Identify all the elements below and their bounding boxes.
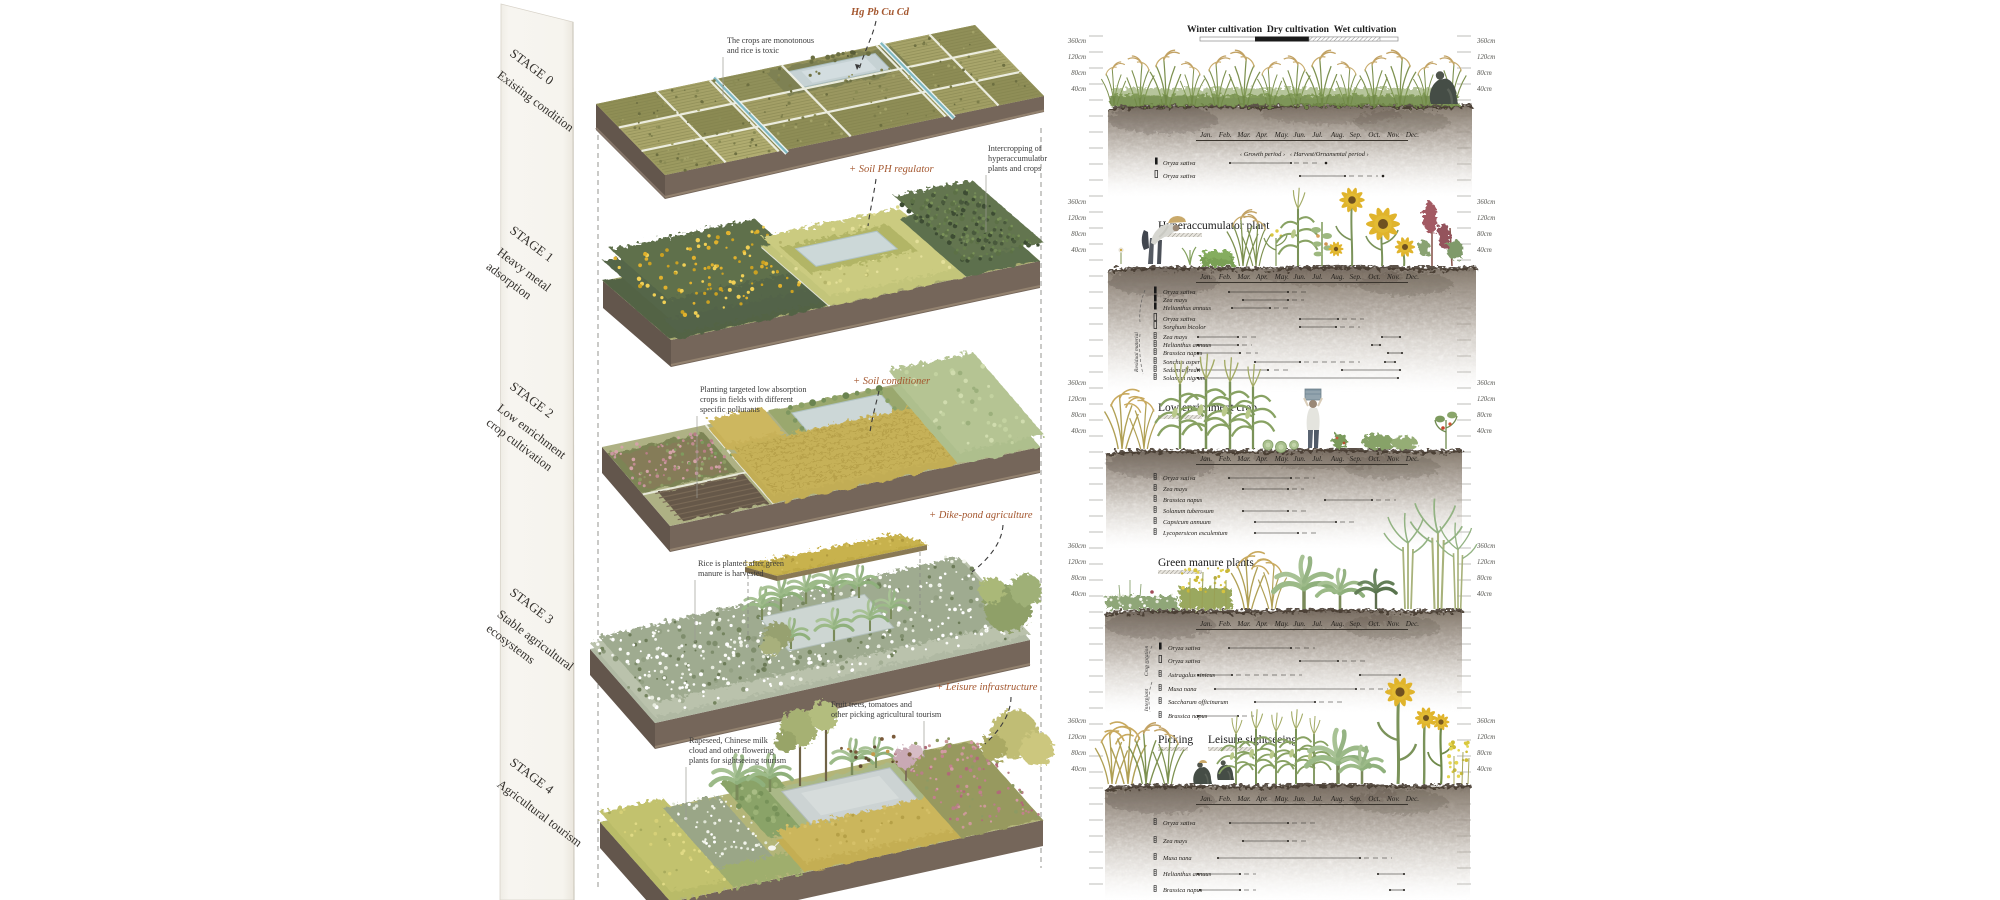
svg-text:Zea mays: Zea mays	[1163, 334, 1188, 341]
svg-text:Jun.: Jun.	[1294, 455, 1306, 463]
svg-text:Helianthus annuus: Helianthus annuus	[1162, 342, 1212, 349]
svg-text:Feb.: Feb.	[1218, 795, 1232, 803]
svg-text:Musa nana: Musa nana	[1167, 686, 1197, 693]
svg-text:120cm: 120cm	[1068, 396, 1086, 403]
svg-text:+ Soil PH regulator: + Soil PH regulator	[849, 164, 934, 175]
svg-text:May.: May.	[1274, 795, 1289, 803]
svg-text:80cm: 80cm	[1071, 412, 1086, 419]
svg-text:Sorghum bicolor: Sorghum bicolor	[1163, 324, 1206, 331]
svg-text:Aug.: Aug.	[1330, 795, 1345, 803]
svg-text:80cm: 80cm	[1477, 412, 1492, 419]
svg-text:80cm: 80cm	[1477, 750, 1492, 757]
svg-text:Zea mays: Zea mays	[1163, 838, 1188, 845]
svg-text:Oryza sativa: Oryza sativa	[1163, 173, 1195, 180]
svg-text:Rapeseed, Chinese milk: Rapeseed, Chinese milk	[689, 736, 769, 745]
svg-text:Apr.: Apr.	[1255, 455, 1268, 463]
svg-text:May.: May.	[1274, 620, 1289, 628]
svg-text:Aug.: Aug.	[1330, 131, 1345, 139]
svg-text:The crops are monotonous: The crops are monotonous	[727, 36, 814, 45]
svg-text:Oryza sativa: Oryza sativa	[1163, 475, 1195, 482]
svg-text:80cm: 80cm	[1477, 231, 1492, 238]
svg-text:Jan.: Jan.	[1200, 795, 1212, 803]
svg-text:Apr.: Apr.	[1255, 273, 1268, 281]
svg-text:Oryza sativa: Oryza sativa	[1163, 289, 1195, 296]
svg-text:360cm: 360cm	[1476, 543, 1495, 550]
svg-text:40cm: 40cm	[1071, 428, 1086, 435]
svg-text:120cm: 120cm	[1068, 734, 1086, 741]
svg-text:Brassica napus: Brassica napus	[1163, 350, 1203, 357]
svg-text:Jan.: Jan.	[1200, 273, 1212, 281]
svg-text:Winter cultivation Dry cultiv: Winter cultivation Dry cultivation Wet c…	[1187, 24, 1397, 35]
svg-text:120cm: 120cm	[1477, 559, 1495, 566]
svg-text:120cm: 120cm	[1068, 54, 1086, 61]
svg-text:80cm: 80cm	[1071, 231, 1086, 238]
svg-text:Oryza sativa: Oryza sativa	[1168, 645, 1200, 652]
svg-text:Oct.: Oct.	[1368, 620, 1380, 628]
svg-text:360cm: 360cm	[1476, 718, 1495, 725]
svg-text:Oryza sativa: Oryza sativa	[1163, 316, 1195, 323]
svg-text:‹ Harvest/Ornamental period ›: ‹ Harvest/Ornamental period ›	[1290, 151, 1369, 158]
svg-text:Crop rotation: Crop rotation	[1144, 646, 1150, 677]
svg-text:Feb.: Feb.	[1218, 455, 1232, 463]
svg-text:40cm: 40cm	[1477, 591, 1492, 598]
svg-text:80cm: 80cm	[1071, 750, 1086, 757]
svg-text:Zea mays: Zea mays	[1163, 486, 1188, 493]
svg-text:360cm: 360cm	[1067, 199, 1086, 206]
svg-text:+ Dike-pond agriculture: + Dike-pond agriculture	[929, 510, 1033, 521]
svg-text:specific pollutants: specific pollutants	[700, 405, 760, 414]
svg-text:Sep.: Sep.	[1350, 131, 1362, 139]
svg-text:120cm: 120cm	[1477, 215, 1495, 222]
svg-text:Dec.: Dec.	[1405, 131, 1420, 139]
svg-text:Nov.: Nov.	[1386, 131, 1400, 139]
svg-text:Jul.: Jul.	[1312, 273, 1323, 281]
svg-text:Oct.: Oct.	[1368, 795, 1380, 803]
svg-text:Oryza sativa: Oryza sativa	[1168, 658, 1200, 665]
svg-text:Oct.: Oct.	[1368, 273, 1380, 281]
svg-text:Interplant: Interplant	[1144, 688, 1150, 712]
svg-text:Sep.: Sep.	[1350, 795, 1362, 803]
svg-text:Nov.: Nov.	[1386, 795, 1400, 803]
svg-text:Feb.: Feb.	[1218, 131, 1232, 139]
svg-text:Jul.: Jul.	[1312, 131, 1323, 139]
svg-text:Helianthus annuus: Helianthus annuus	[1162, 871, 1212, 878]
svg-text:360cm: 360cm	[1067, 543, 1086, 550]
svg-text:Jun.: Jun.	[1294, 795, 1306, 803]
svg-text:Capsicum annuum: Capsicum annuum	[1163, 519, 1211, 526]
svg-text:Jun.: Jun.	[1294, 620, 1306, 628]
svg-text:Oryza sativa: Oryza sativa	[1163, 820, 1195, 827]
svg-text:Musa nana: Musa nana	[1162, 855, 1192, 862]
svg-text:Fruit trees, tomatoes and: Fruit trees, tomatoes and	[831, 700, 912, 709]
svg-text:other picking agricultural tou: other picking agricultural tourism	[831, 710, 942, 719]
svg-text:360cm: 360cm	[1067, 38, 1086, 45]
svg-text:Lycopersicon esculentum: Lycopersicon esculentum	[1162, 530, 1228, 537]
svg-text:Mar.: Mar.	[1236, 455, 1251, 463]
svg-text:May.: May.	[1274, 131, 1289, 139]
svg-text:Mar.: Mar.	[1236, 620, 1251, 628]
svg-text:80cm: 80cm	[1071, 70, 1086, 77]
svg-text:Saccharum officinarum: Saccharum officinarum	[1168, 699, 1229, 706]
svg-text:Residual material: Residual material	[1134, 332, 1140, 373]
svg-text:Planting targeted low absorpti: Planting targeted low absorption	[700, 385, 807, 394]
svg-text:hyperaccumulator: hyperaccumulator	[988, 154, 1047, 163]
svg-text:Mar.: Mar.	[1236, 131, 1251, 139]
svg-text:Feb.: Feb.	[1218, 620, 1232, 628]
svg-text:Jul.: Jul.	[1312, 455, 1323, 463]
svg-text:Nov.: Nov.	[1386, 620, 1400, 628]
svg-text:40cm: 40cm	[1477, 428, 1492, 435]
svg-text:40cm: 40cm	[1071, 86, 1086, 93]
svg-text:Zea mays: Zea mays	[1163, 297, 1188, 304]
svg-text:Solanum tuberosum: Solanum tuberosum	[1163, 508, 1214, 515]
svg-text:Mar.: Mar.	[1236, 273, 1251, 281]
svg-text:Jul.: Jul.	[1312, 620, 1323, 628]
svg-text:Dec.: Dec.	[1405, 455, 1420, 463]
svg-text:+ Leisure infrastructure: + Leisure infrastructure	[936, 682, 1038, 693]
svg-text:Hg Pb Cu Cd: Hg Pb Cu Cd	[850, 7, 910, 18]
svg-text:Helianthus annuus: Helianthus annuus	[1162, 305, 1212, 312]
svg-text:Brassica napus: Brassica napus	[1163, 497, 1203, 504]
svg-text:cloud and other flowering: cloud and other flowering	[689, 746, 774, 755]
svg-text:40cm: 40cm	[1477, 766, 1492, 773]
svg-text:Oryza sativa: Oryza sativa	[1163, 160, 1195, 167]
svg-text:plants and crops: plants and crops	[988, 164, 1041, 173]
svg-text:+ Soil conditioner: + Soil conditioner	[853, 376, 931, 387]
svg-text:Aug.: Aug.	[1330, 273, 1345, 281]
svg-text:Jun.: Jun.	[1294, 131, 1306, 139]
svg-text:Aug.: Aug.	[1330, 620, 1345, 628]
svg-text:Apr.: Apr.	[1255, 620, 1268, 628]
svg-text:120cm: 120cm	[1068, 559, 1086, 566]
svg-text:120cm: 120cm	[1068, 215, 1086, 222]
svg-text:120cm: 120cm	[1477, 396, 1495, 403]
svg-text:Oct.: Oct.	[1368, 455, 1380, 463]
svg-text:80cm: 80cm	[1477, 575, 1492, 582]
svg-text:manure is harvested: manure is harvested	[698, 569, 763, 578]
svg-text:Nov.: Nov.	[1386, 455, 1400, 463]
svg-text:Aug.: Aug.	[1330, 455, 1345, 463]
svg-text:Jan.: Jan.	[1200, 620, 1212, 628]
svg-text:Feb.: Feb.	[1218, 273, 1232, 281]
svg-text:40cm: 40cm	[1477, 247, 1492, 254]
svg-text:40cm: 40cm	[1071, 247, 1086, 254]
svg-text:Nov.: Nov.	[1386, 273, 1400, 281]
svg-text:May.: May.	[1274, 273, 1289, 281]
svg-text:80cm: 80cm	[1477, 70, 1492, 77]
svg-text:40cm: 40cm	[1477, 86, 1492, 93]
svg-text:360cm: 360cm	[1476, 199, 1495, 206]
svg-text:Apr.: Apr.	[1255, 131, 1268, 139]
svg-text:Oct.: Oct.	[1368, 131, 1380, 139]
svg-text:Astragalus sinicus: Astragalus sinicus	[1167, 672, 1216, 679]
svg-text:and rice is toxic: and rice is toxic	[727, 46, 779, 55]
svg-text:Brassica napus: Brassica napus	[1168, 713, 1208, 720]
svg-text:120cm: 120cm	[1477, 734, 1495, 741]
svg-text:Jul.: Jul.	[1312, 795, 1323, 803]
svg-text:Picking: Picking	[1158, 734, 1193, 746]
svg-text:120cm: 120cm	[1477, 54, 1495, 61]
svg-text:360cm: 360cm	[1067, 380, 1086, 387]
svg-text:360cm: 360cm	[1067, 718, 1086, 725]
svg-text:Jun.: Jun.	[1294, 273, 1306, 281]
svg-text:Dec.: Dec.	[1405, 795, 1420, 803]
svg-text:40cm: 40cm	[1071, 766, 1086, 773]
svg-text:Jan.: Jan.	[1200, 131, 1212, 139]
svg-text:Mar.: Mar.	[1236, 795, 1251, 803]
svg-text:Brassica napus: Brassica napus	[1163, 887, 1203, 894]
svg-text:Jan.: Jan.	[1200, 455, 1212, 463]
svg-text:Sep.: Sep.	[1350, 620, 1362, 628]
svg-text:Rice is planted after green: Rice is planted after green	[698, 559, 784, 568]
svg-text:crops in fields with different: crops in fields with different	[700, 395, 794, 404]
svg-text:Sep.: Sep.	[1350, 455, 1362, 463]
svg-text:Apr.: Apr.	[1255, 795, 1268, 803]
svg-text:‹ Growth period ›: ‹ Growth period ›	[1240, 151, 1285, 158]
svg-text:Dec.: Dec.	[1405, 620, 1420, 628]
svg-text:Sep.: Sep.	[1350, 273, 1362, 281]
svg-text:40cm: 40cm	[1071, 591, 1086, 598]
svg-text:Intercropping of: Intercropping of	[988, 144, 1042, 153]
svg-text:360cm: 360cm	[1476, 38, 1495, 45]
svg-text:360cm: 360cm	[1476, 380, 1495, 387]
svg-text:Dec.: Dec.	[1405, 273, 1420, 281]
svg-text:May.: May.	[1274, 455, 1289, 463]
svg-text:Sedum alfredii: Sedum alfredii	[1163, 367, 1200, 374]
svg-text:80cm: 80cm	[1071, 575, 1086, 582]
svg-text:plants for sightseeing tourism: plants for sightseeing tourism	[689, 756, 787, 765]
